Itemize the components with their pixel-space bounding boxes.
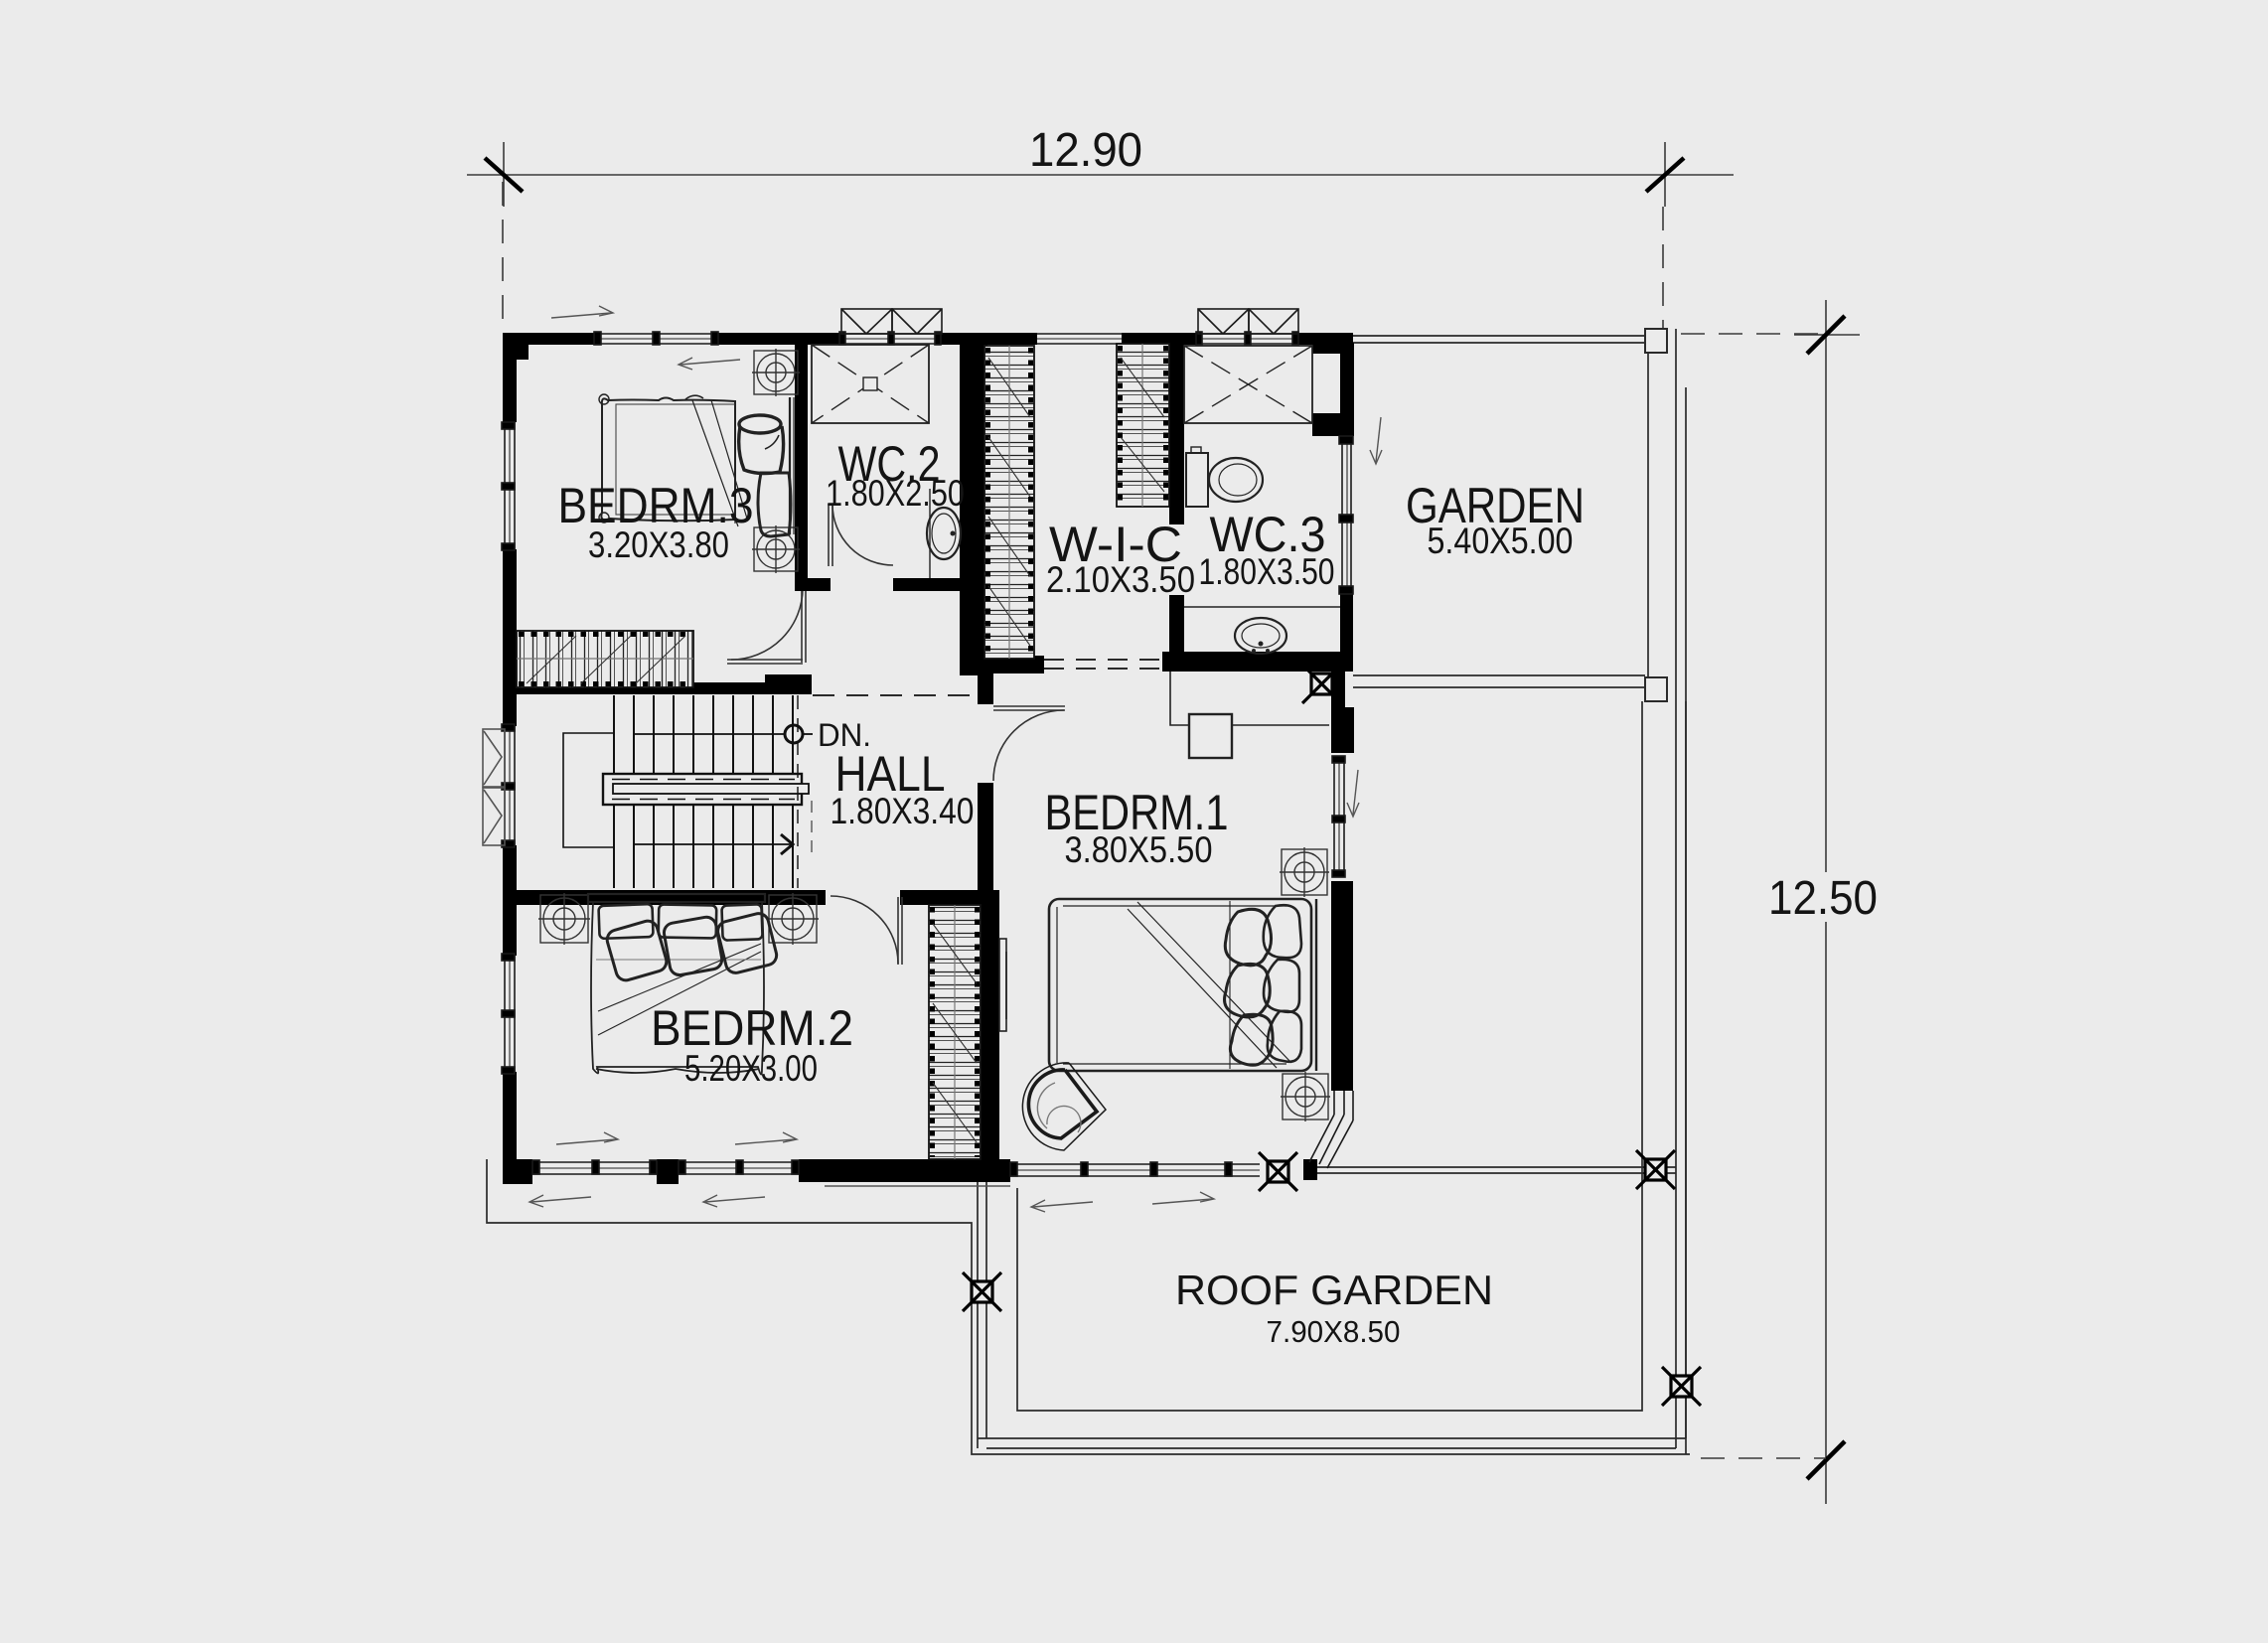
svg-text:7.90X8.50: 7.90X8.50 bbox=[1267, 1314, 1401, 1349]
svg-text:DN.: DN. bbox=[818, 717, 871, 753]
svg-text:1.80X2.50: 1.80X2.50 bbox=[826, 473, 965, 514]
svg-text:1.80X3.40: 1.80X3.40 bbox=[831, 791, 975, 831]
svg-text:12.50: 12.50 bbox=[1768, 872, 1878, 925]
svg-text:3.80X5.50: 3.80X5.50 bbox=[1065, 829, 1213, 870]
svg-text:5.20X3.00: 5.20X3.00 bbox=[684, 1048, 818, 1089]
svg-text:ROOF GARDEN: ROOF GARDEN bbox=[1175, 1267, 1493, 1313]
svg-text:3.20X3.80: 3.20X3.80 bbox=[588, 524, 729, 565]
svg-text:5.40X5.00: 5.40X5.00 bbox=[1428, 521, 1574, 561]
svg-text:1.80X3.50: 1.80X3.50 bbox=[1199, 551, 1335, 592]
svg-text:12.90: 12.90 bbox=[1029, 124, 1142, 177]
svg-text:2.10X3.50: 2.10X3.50 bbox=[1046, 559, 1195, 600]
